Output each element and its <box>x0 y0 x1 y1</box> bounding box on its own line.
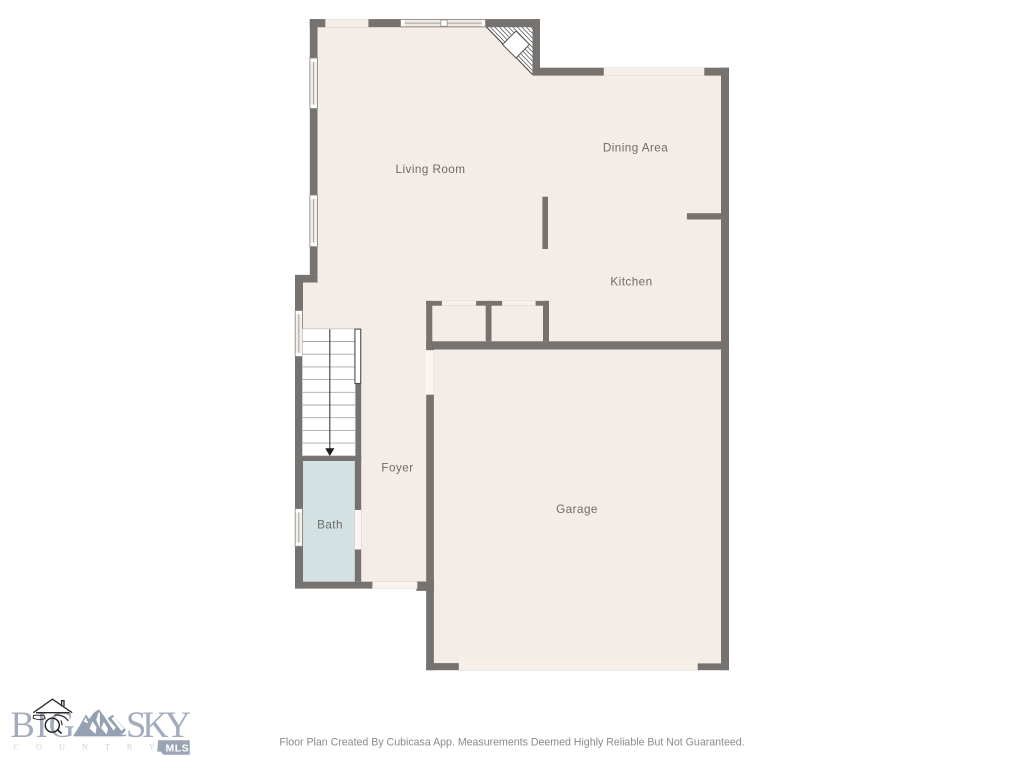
svg-text:Bath: Bath <box>317 519 343 532</box>
svg-text:Living Room: Living Room <box>396 163 466 176</box>
svg-text:Dining Area: Dining Area <box>603 142 668 155</box>
svg-text:COUNTRY: COUNTRY <box>14 742 172 752</box>
svg-text:Floor Plan Created By Cubicasa: Floor Plan Created By Cubicasa App. Meas… <box>279 737 744 749</box>
svg-text:Kitchen: Kitchen <box>610 275 652 288</box>
svg-text:Garage: Garage <box>556 503 598 516</box>
svg-text:BIG: BIG <box>11 704 76 745</box>
svg-text:MLS: MLS <box>166 743 190 755</box>
svg-text:Foyer: Foyer <box>381 461 413 474</box>
svg-text:SKY: SKY <box>126 704 191 745</box>
